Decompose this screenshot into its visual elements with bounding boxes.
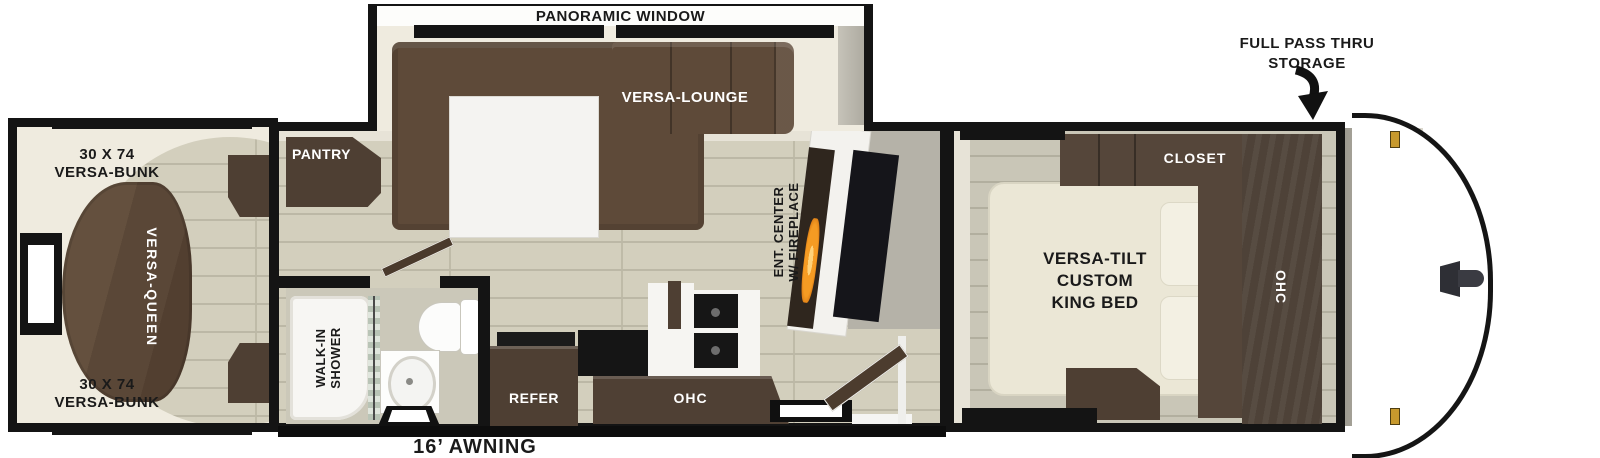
shower-glass-frame xyxy=(373,296,375,420)
bath-sink xyxy=(388,356,436,412)
closet-label: CLOSET xyxy=(1140,150,1250,167)
slideout-side-panel xyxy=(838,15,864,125)
panoramic-window-glass-2 xyxy=(616,25,834,38)
bathroom-wall-right xyxy=(478,288,490,432)
toilet-bowl xyxy=(418,302,466,352)
refer-label: REFER xyxy=(492,390,576,407)
pass-thru-arrow-icon xyxy=(1272,66,1332,124)
lounge-table xyxy=(450,97,598,237)
bedroom-separator-wall xyxy=(940,122,954,432)
walk-in-shower-label: WALK-IN SHOWER xyxy=(313,303,345,413)
kitchen-sink-divider xyxy=(694,328,738,333)
upper-cabinet-edge xyxy=(668,281,681,329)
bed-headboard xyxy=(1198,180,1244,418)
bunk-label-top: 30 X 74 VERSA-BUNK xyxy=(22,146,192,181)
rv-floorplan: 30 X 74 VERSA-BUNK 30 X 74 VERSA-BUNK VE… xyxy=(0,0,1600,458)
versa-lounge-label: VERSA-LOUNGE xyxy=(590,89,780,107)
king-bed-label: VERSA-TILT CUSTOM KING BED xyxy=(995,248,1195,314)
versa-queen-sofa xyxy=(62,182,192,402)
stove xyxy=(578,330,648,376)
rear-side-window-glass xyxy=(28,245,54,323)
rear-top-window xyxy=(52,122,252,129)
awning-label: 16’ AWNING xyxy=(330,436,620,458)
bathroom-wall-top-right xyxy=(440,276,490,288)
hitch-coupler xyxy=(1440,261,1460,297)
hitch-stem xyxy=(1458,270,1484,287)
clearance-light-bottom xyxy=(1390,408,1400,425)
pantry-label: PANTRY xyxy=(288,146,382,163)
toilet-tank xyxy=(460,299,480,355)
bathroom-wall-top-left xyxy=(278,276,370,288)
bunk-label-bottom: 30 X 74 VERSA-BUNK xyxy=(22,376,192,411)
ent-center-label: ENT. CENTER W/ FIREPLACE xyxy=(771,157,803,307)
rear-bottom-window xyxy=(52,429,252,435)
panoramic-window-label: PANORAMIC WINDOW xyxy=(377,8,864,26)
panoramic-window-glass-1 xyxy=(414,25,604,38)
bedroom-ohc-label: OHC xyxy=(1273,257,1289,317)
sink-drain-1 xyxy=(711,308,720,317)
bath-mat-center xyxy=(388,410,430,422)
bath-sink-drain xyxy=(406,378,413,385)
bedroom-wall-band xyxy=(954,131,970,423)
versa-queen-label: VERSA-QUEEN xyxy=(142,187,162,387)
clearance-light-top xyxy=(1390,131,1400,148)
kitchen-ohc-label: OHC xyxy=(648,390,733,407)
bedroom-bottom-window xyxy=(962,408,1097,424)
refer-box xyxy=(490,346,578,428)
bedroom-top-window xyxy=(960,124,1065,140)
lounge-seats xyxy=(612,42,794,134)
sink-drain-2 xyxy=(711,346,720,355)
